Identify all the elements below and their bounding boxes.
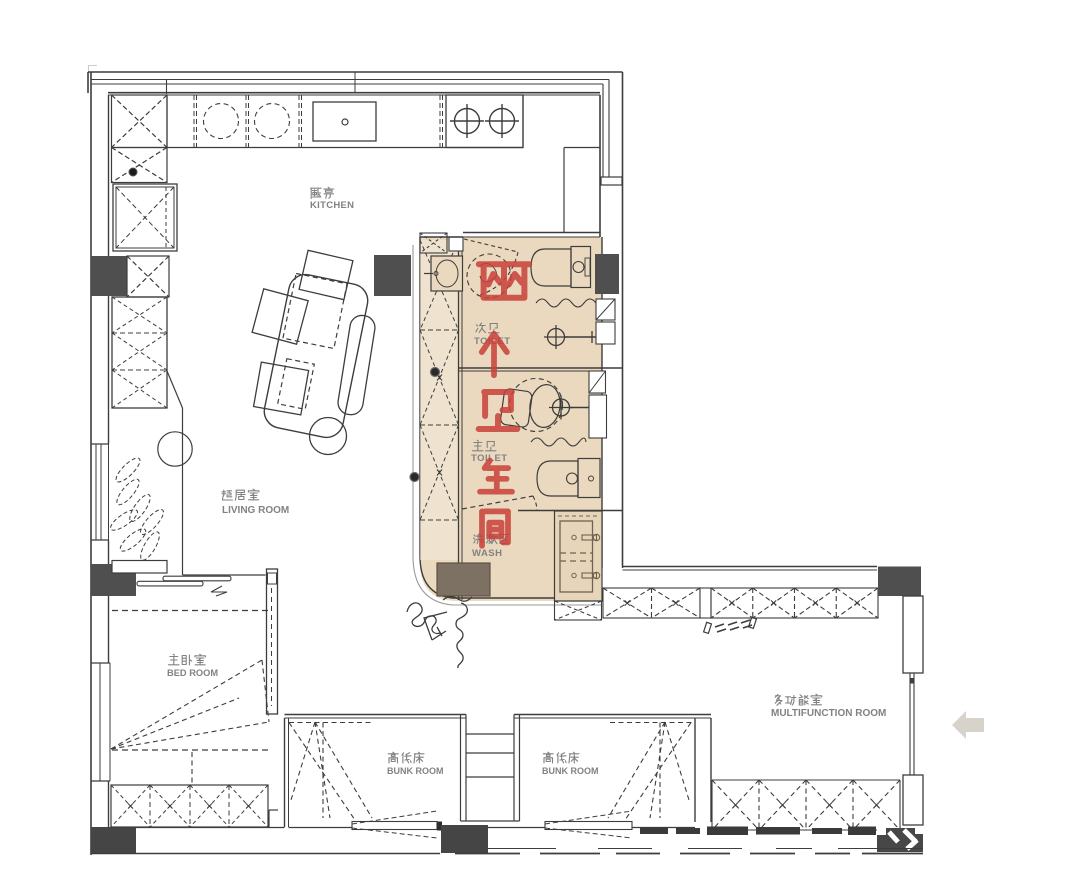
svg-text:BUNK ROOM: BUNK ROOM [542, 766, 599, 776]
svg-text:BED ROOM: BED ROOM [167, 668, 218, 678]
svg-text:LIVING ROOM: LIVING ROOM [222, 505, 289, 516]
svg-text:MULTIFUNCTION ROOM: MULTIFUNCTION ROOM [771, 708, 886, 719]
svg-text:WASH: WASH [472, 548, 503, 559]
svg-text:KITCHEN: KITCHEN [310, 200, 354, 211]
svg-text:BUNK ROOM: BUNK ROOM [387, 766, 444, 776]
